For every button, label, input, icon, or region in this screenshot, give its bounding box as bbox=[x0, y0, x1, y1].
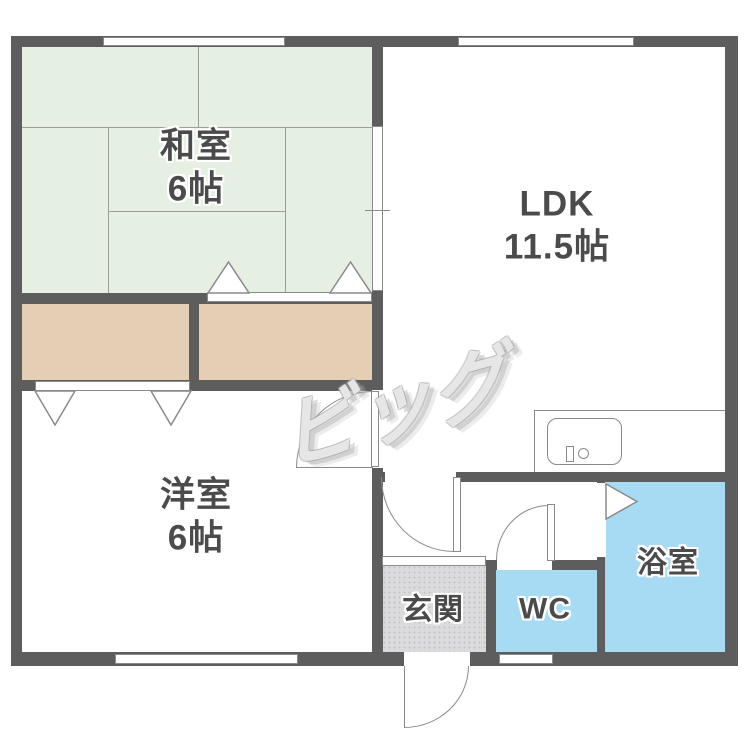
door-swing-entrance bbox=[404, 666, 469, 728]
bathroom-door-icon bbox=[605, 483, 638, 520]
folding-door-icon bbox=[34, 390, 76, 426]
wall-washitsu-ldk-upper bbox=[372, 47, 383, 126]
doorway-entrance bbox=[404, 652, 470, 666]
washitsu-size: 6帖 bbox=[160, 168, 232, 211]
youshitsu-size: 6帖 bbox=[160, 517, 232, 560]
closet-b-floor bbox=[199, 304, 372, 380]
genkan-step bbox=[382, 556, 486, 566]
bathroom-label: 浴室 bbox=[637, 546, 699, 583]
washitsu-label: 和室 6帖 bbox=[160, 125, 232, 210]
genkan-label: 玄関 bbox=[402, 593, 464, 630]
wall-right bbox=[725, 36, 738, 666]
sliding-door-center-mark bbox=[365, 210, 390, 211]
sink-drain bbox=[578, 448, 589, 459]
washitsu-name: 和室 bbox=[160, 125, 232, 168]
wall-washitsu-ldk-lower bbox=[372, 291, 383, 390]
wall-genkan-wc bbox=[486, 560, 496, 652]
window-youshitsu bbox=[115, 654, 298, 664]
youshitsu-name: 洋室 bbox=[160, 474, 232, 517]
wall-hall-wc-left bbox=[486, 560, 497, 570]
folding-door-icon bbox=[150, 390, 192, 426]
youshitsu-label: 洋室 6帖 bbox=[160, 474, 232, 559]
doorway-wc bbox=[497, 560, 552, 570]
wall-wc-bathroom bbox=[597, 557, 605, 652]
floor-plan: ビッグ bbox=[0, 0, 750, 750]
wc-label: WC bbox=[519, 592, 571, 629]
window-wc bbox=[499, 654, 553, 664]
tatami-line bbox=[108, 211, 286, 212]
folding-door-icon bbox=[329, 261, 372, 294]
door-leaf-wc bbox=[547, 504, 555, 561]
sliding-door-washitsu-ldk bbox=[372, 126, 383, 291]
wall-between-closets bbox=[189, 304, 199, 380]
ldk-name: LDK bbox=[504, 183, 610, 226]
sink-faucet bbox=[566, 446, 574, 462]
closet-a-floor bbox=[22, 304, 189, 380]
window-ldk bbox=[458, 37, 634, 46]
tatami-line bbox=[198, 47, 199, 128]
ldk-label: LDK 11.5帖 bbox=[504, 183, 610, 268]
folding-door-icon bbox=[207, 261, 250, 294]
window-washitsu bbox=[103, 37, 285, 46]
door-leaf-hall-ldk bbox=[453, 477, 461, 552]
ldk-size: 11.5帖 bbox=[504, 226, 610, 269]
wall-left bbox=[11, 36, 22, 666]
